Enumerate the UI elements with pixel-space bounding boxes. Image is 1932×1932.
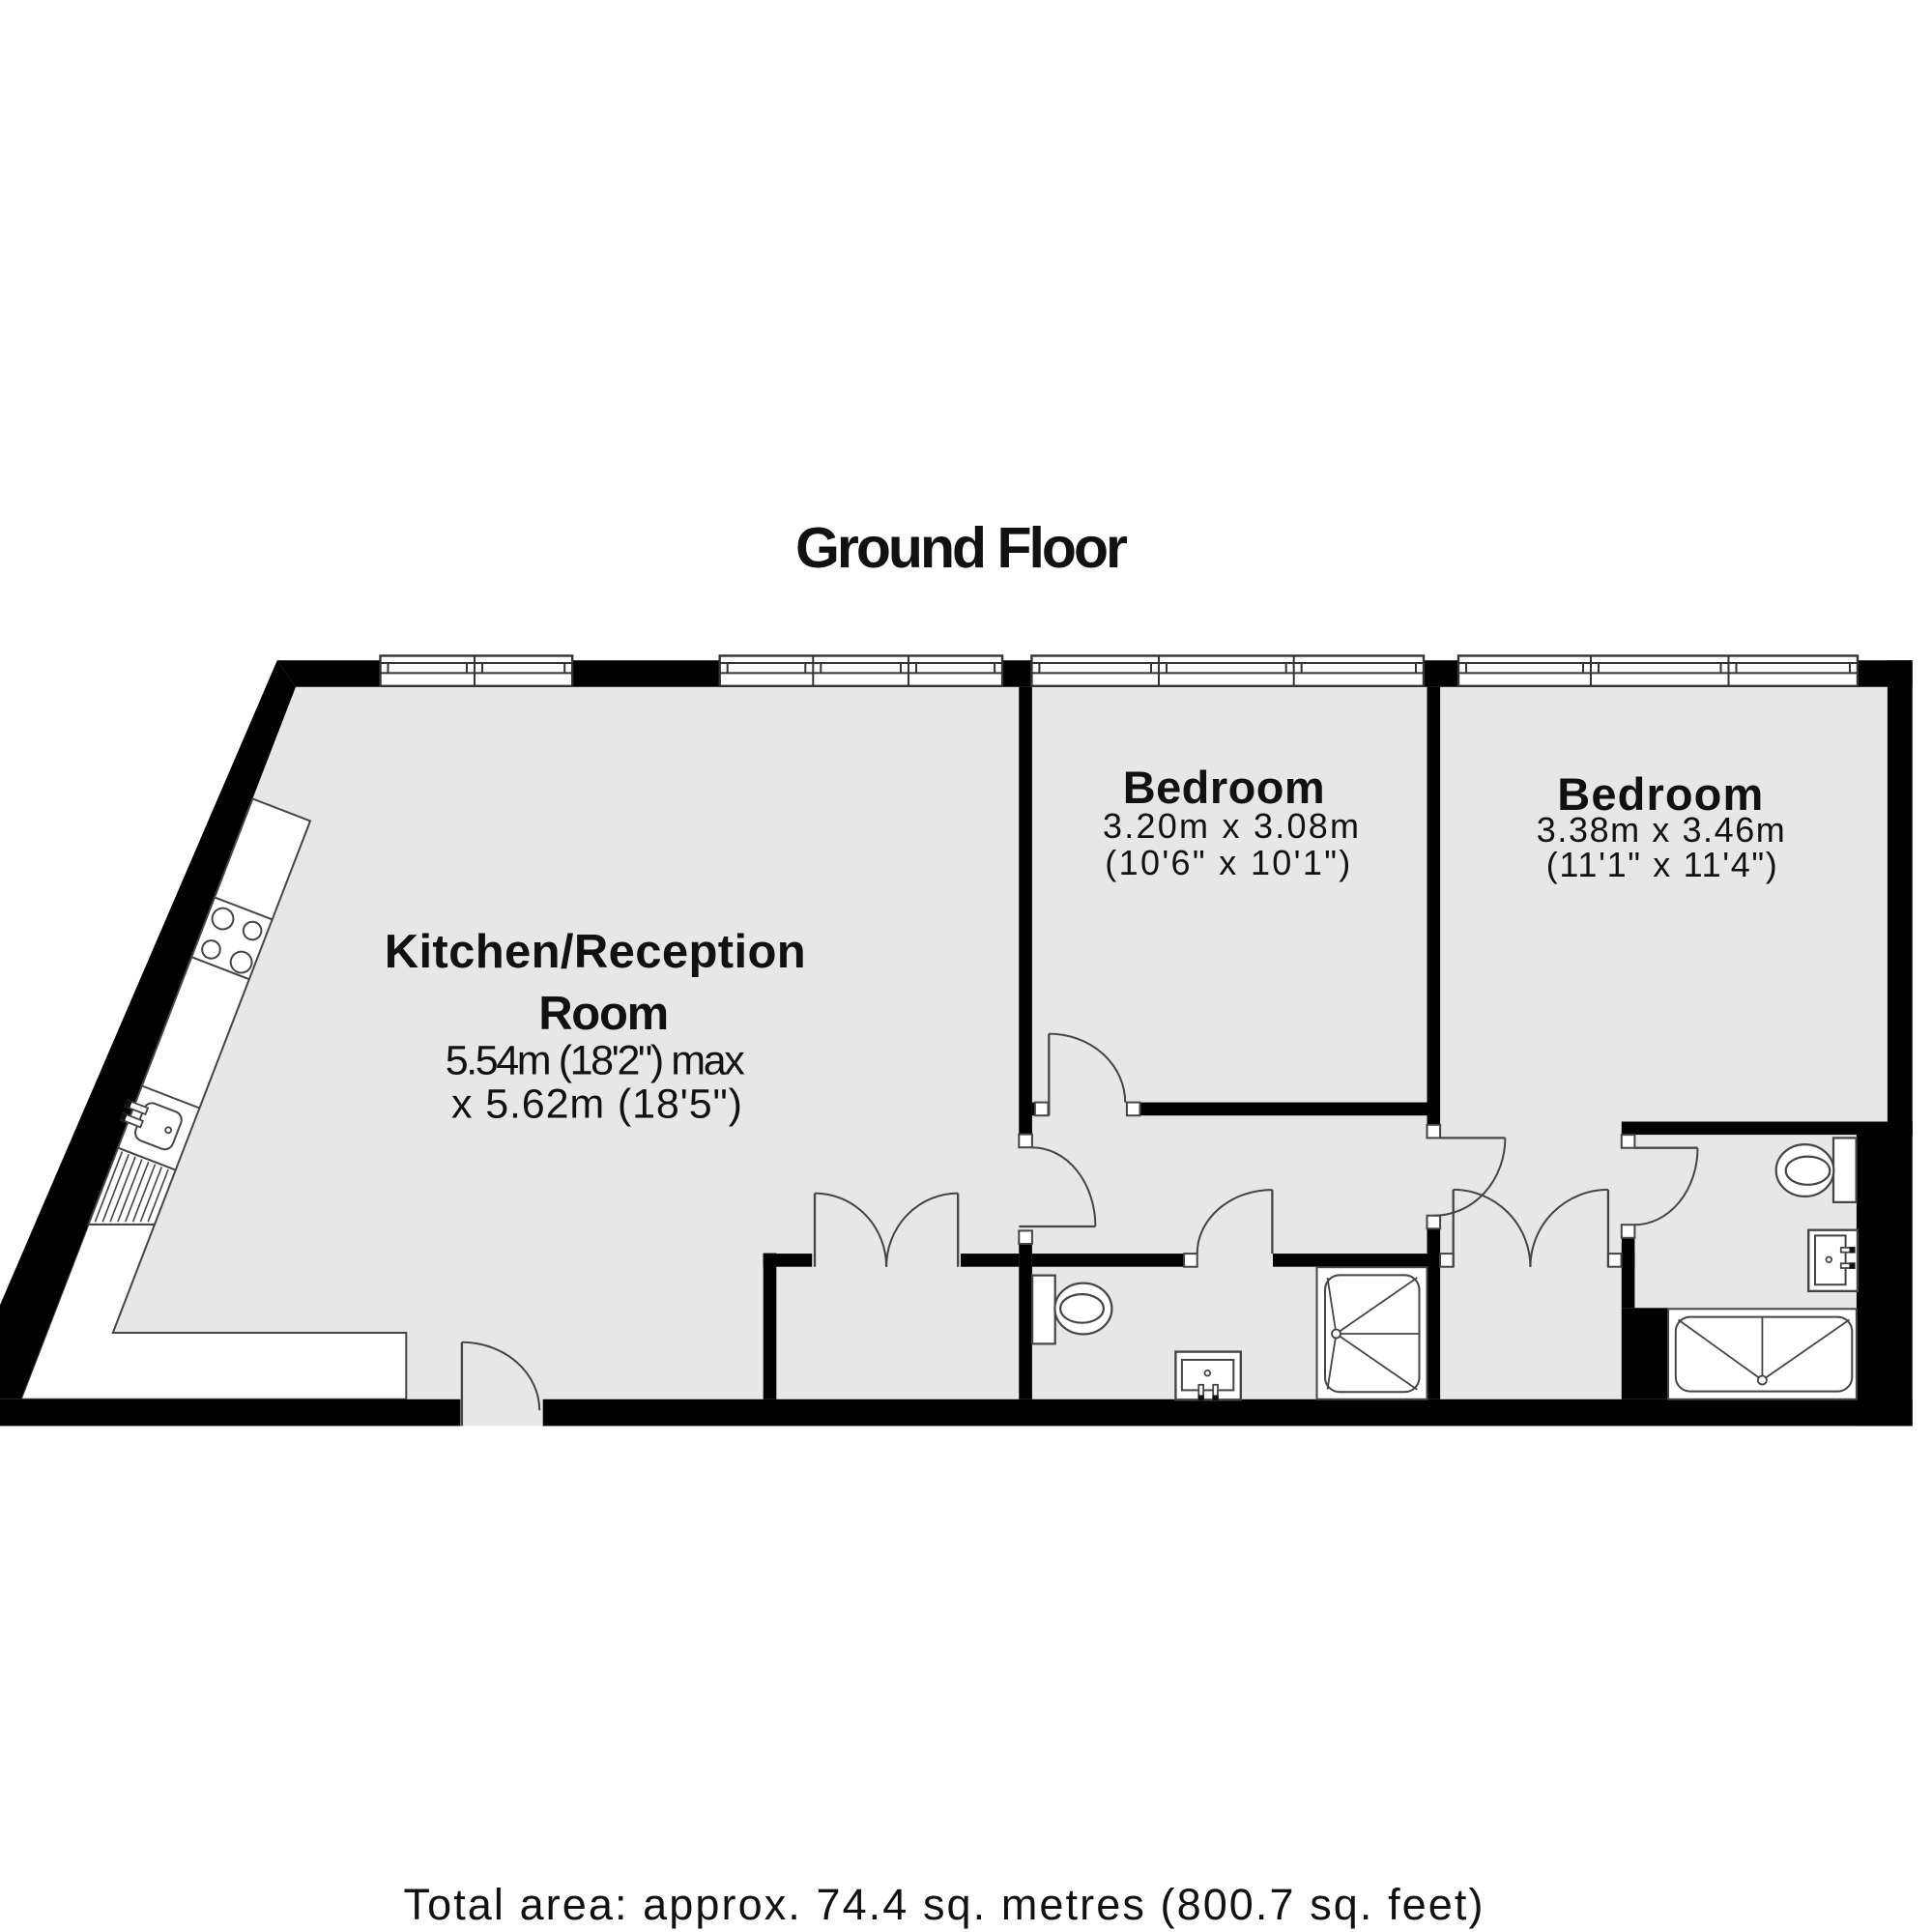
svg-text:3.38m x 3.46m: 3.38m x 3.46m [1537,810,1785,850]
svg-text:(10'6" x 10'1"): (10'6" x 10'1") [1105,843,1350,882]
svg-text:Room: Room [538,988,669,1040]
svg-text:x 5.62m (18'5"): x 5.62m (18'5") [451,1081,742,1128]
svg-text:Ground Floor: Ground Floor [795,516,1128,580]
svg-text:3.20m x 3.08m: 3.20m x 3.08m [1103,806,1359,846]
svg-text:(11'1" x 11'4"): (11'1" x 11'4") [1546,845,1777,884]
svg-text:Kitchen/Reception: Kitchen/Reception [385,926,806,978]
svg-text:Total area: approx. 74.4 sq. m: Total area: approx. 74.4 sq. metres (800… [404,1880,1484,1929]
svg-text:5.54m (18'2") max: 5.54m (18'2") max [446,1038,746,1084]
